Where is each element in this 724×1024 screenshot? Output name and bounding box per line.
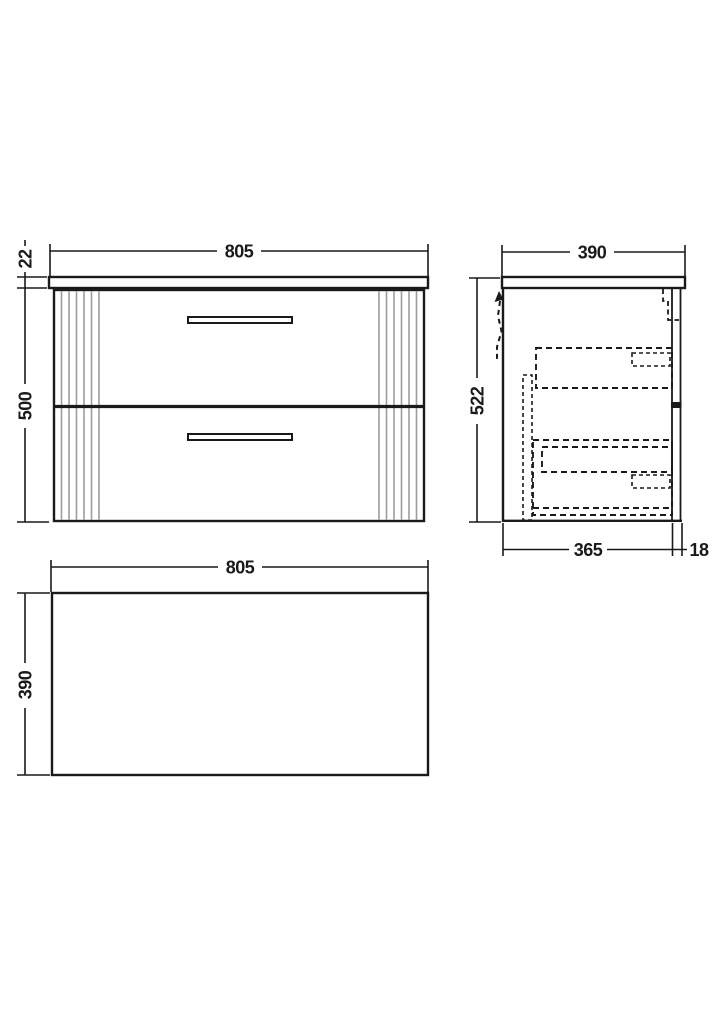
upper-drawer-box-hidden: [536, 348, 672, 388]
front-worktop-thickness-dimension: 22: [16, 240, 48, 384]
front-view: 805 22 500: [16, 240, 429, 522]
plan-depth-dimension: 390: [16, 593, 51, 775]
lower-drawer-runner-hidden: [632, 475, 670, 488]
lower-drawer-front-hidden: [533, 440, 672, 515]
front-width-dimension: 805: [50, 242, 428, 277]
side-view: 390 522: [468, 243, 709, 561]
bottom-drawer-handle: [188, 434, 292, 440]
side-hidden-drawer-details: [523, 348, 672, 520]
plan-worktop-outline: [52, 593, 428, 775]
side-depth-dimension-label: 390: [578, 243, 607, 263]
side-bottom-dimensions: 365 18: [503, 523, 709, 560]
front-worktop-thickness-label: 22: [16, 249, 36, 269]
lower-drawer-box-hidden: [542, 447, 672, 472]
drawer-front-edge-hidden: [523, 375, 532, 520]
side-worktop: [502, 277, 685, 288]
vanity-unit-dimension-drawing: 805 22 500: [0, 0, 724, 1024]
plan-depth-dimension-label: 390: [16, 670, 36, 699]
plan-width-dimension-label: 805: [226, 558, 255, 578]
side-back-panel-label: 18: [689, 540, 709, 560]
upper-drawer-runner-hidden: [632, 353, 670, 366]
side-depth-dimension: 390: [502, 243, 685, 277]
side-wall-bracket-right: [663, 289, 679, 320]
plan-view: 805 390: [16, 558, 429, 776]
front-worktop: [49, 277, 428, 288]
side-back-panel-rail-joint: [671, 402, 682, 408]
front-width-dimension-label: 805: [225, 242, 254, 262]
bracket-hidden-line: [497, 301, 502, 359]
side-cabinet-outline: [503, 288, 682, 521]
top-drawer-handle: [188, 317, 292, 323]
front-height-dimension-label: 500: [16, 391, 36, 420]
plan-width-dimension: 805: [51, 558, 428, 593]
side-height-dimension: 522: [468, 278, 502, 522]
front-height-dimension: 500: [16, 391, 50, 522]
side-height-dimension-label: 522: [468, 386, 488, 415]
technical-drawing-sheet: 805 22 500: [0, 0, 724, 1024]
side-cabinet-depth-label: 365: [574, 540, 603, 560]
